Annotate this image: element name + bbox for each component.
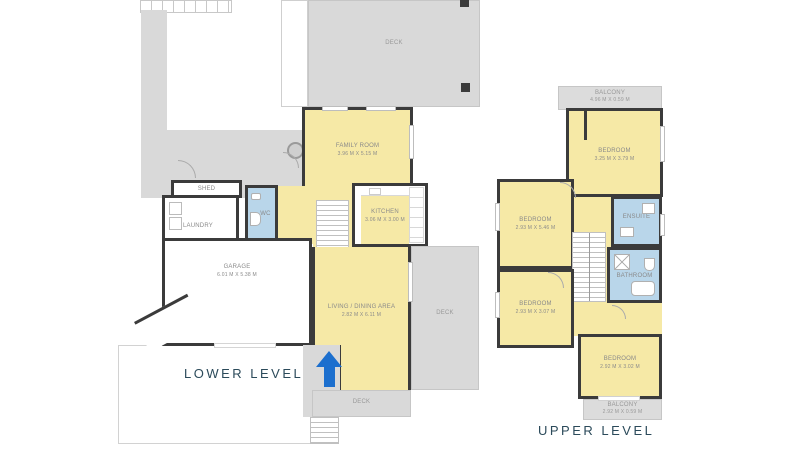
wall-segment	[584, 108, 587, 140]
entry-arrow-stem	[324, 367, 335, 387]
balcony-bottom-label: BALCONY 2.92 M X 0.59 M	[584, 401, 661, 416]
entry-arrow	[316, 351, 342, 389]
bedroom-bottom-right-dims: 2.92 M X 3.02 M	[581, 364, 659, 372]
bedroom-top-name: BEDROOM	[569, 147, 660, 156]
window	[408, 262, 413, 302]
bedroom-bottom-right-name: BEDROOM	[581, 355, 659, 364]
bedroom-top-label: BEDROOM 3.25 M X 3.79 M	[569, 147, 660, 164]
window	[660, 126, 665, 162]
deck-top-label: DECK	[309, 39, 479, 48]
bathroom-shower	[614, 254, 630, 270]
deck-top: DECK	[308, 0, 480, 107]
bedroom-bottom-left-label: BEDROOM 2.93 M X 3.07 M	[500, 300, 571, 317]
laundry: LAUNDRY	[162, 195, 239, 241]
ensuite: ENSUITE	[611, 196, 662, 247]
kitchen-counter	[409, 187, 424, 243]
balcony-top-dims: 4.96 M X 0.59 M	[559, 97, 661, 104]
wc-label: WC	[256, 210, 275, 219]
pergola-strip	[281, 0, 308, 107]
living-dining-label: LIVING / DINING AREA 2.82 M X 6.11 M	[315, 303, 408, 320]
boundary-line	[118, 345, 119, 444]
bathroom: BATHROOM	[607, 247, 662, 303]
family-room-label: FAMILY ROOM 3.96 M X 5.15 M	[305, 142, 410, 159]
bedroom-bottom-right: BEDROOM 2.92 M X 3.02 M	[578, 334, 662, 399]
dryer	[169, 217, 182, 230]
garage-dims: 6.01 M X 5.38 M	[165, 272, 309, 280]
bathtub	[631, 281, 655, 296]
deck-right: DECK	[411, 246, 479, 390]
garage-name: GARAGE	[165, 263, 309, 272]
deck-bottom: DECK	[312, 390, 411, 417]
kitchen-name: KITCHEN	[361, 208, 409, 217]
bedroom-top: BEDROOM 3.25 M X 3.79 M	[566, 108, 663, 197]
boundary-line	[118, 443, 314, 444]
bathroom-toilet	[644, 258, 655, 271]
kitchen-dims: 3.06 M X 3.00 M	[361, 217, 409, 225]
bedroom-mid-left-label: BEDROOM 2.93 M X 5.46 M	[500, 216, 571, 233]
window	[322, 106, 348, 111]
bedroom-mid-left-dims: 2.93 M X 5.46 M	[500, 225, 571, 233]
window	[409, 125, 414, 159]
window	[366, 106, 396, 111]
bathroom-label: BATHROOM	[610, 272, 659, 281]
ensuite-shower	[642, 203, 655, 214]
living-dining-name: LIVING / DINING AREA	[315, 303, 408, 312]
kitchen-room: KITCHEN 3.06 M X 3.00 M	[352, 183, 428, 247]
stair-rail	[589, 233, 590, 301]
bedroom-bottom-left-dims: 2.93 M X 3.07 M	[500, 309, 571, 317]
garage-label: GARAGE 6.01 M X 5.38 M	[165, 263, 309, 280]
garage-door-opening	[214, 343, 276, 348]
deck-post	[461, 83, 470, 92]
shed-label: SHED	[174, 185, 239, 194]
bedroom-top-dims: 3.25 M X 3.79 M	[569, 156, 660, 164]
balcony-top-label: BALCONY 4.96 M X 0.59 M	[559, 89, 661, 104]
deck-right-label: DECK	[412, 309, 478, 318]
stairs-lower	[316, 200, 349, 248]
balcony-top-name: BALCONY	[559, 89, 661, 97]
balcony-bottom-name: BALCONY	[584, 401, 661, 409]
shed: SHED	[171, 180, 242, 198]
entry-arrow-head	[316, 351, 342, 367]
ensuite-label: ENSUITE	[614, 213, 659, 222]
family-room-dims: 3.96 M X 5.15 M	[305, 151, 410, 159]
balcony-slider	[598, 396, 640, 401]
driveway-strip	[141, 10, 167, 138]
window	[495, 203, 500, 231]
bedroom-bottom-left-name: BEDROOM	[500, 300, 571, 309]
family-room-name: FAMILY ROOM	[305, 142, 410, 151]
balcony-bottom-dims: 2.92 M X 0.59 M	[584, 409, 661, 416]
balcony-bottom: BALCONY 2.92 M X 0.59 M	[583, 399, 662, 420]
ensuite-vanity	[620, 227, 634, 237]
entry-steps	[310, 417, 339, 444]
cooktop	[369, 188, 381, 195]
deck-post	[460, 0, 469, 7]
stairs-upper	[572, 232, 606, 302]
window	[495, 292, 500, 318]
wc-basin	[251, 193, 261, 200]
kitchen-floor: KITCHEN 3.06 M X 3.00 M	[361, 196, 409, 244]
kitchen-label: KITCHEN 3.06 M X 3.00 M	[361, 208, 409, 225]
bedroom-bottom-right-label: BEDROOM 2.92 M X 3.02 M	[581, 355, 659, 372]
deck-bottom-label: DECK	[313, 398, 410, 407]
window	[660, 214, 665, 236]
living-dining-room: LIVING / DINING AREA 2.82 M X 6.11 M	[312, 247, 411, 350]
washer	[169, 202, 182, 215]
lower-level-title: LOWER LEVEL	[184, 366, 303, 381]
living-dining-dims: 2.82 M X 6.11 M	[315, 312, 408, 320]
wc-room: WC	[245, 185, 278, 242]
floorplan-canvas: DECK FAMILY ROOM 3.96 M X 5.15 M KITCHEN…	[0, 0, 800, 457]
laundry-label: LAUNDRY	[183, 222, 213, 231]
bedroom-mid-left-name: BEDROOM	[500, 216, 571, 225]
upper-level-title: UPPER LEVEL	[538, 423, 654, 438]
balcony-top: BALCONY 4.96 M X 0.59 M	[558, 86, 662, 110]
